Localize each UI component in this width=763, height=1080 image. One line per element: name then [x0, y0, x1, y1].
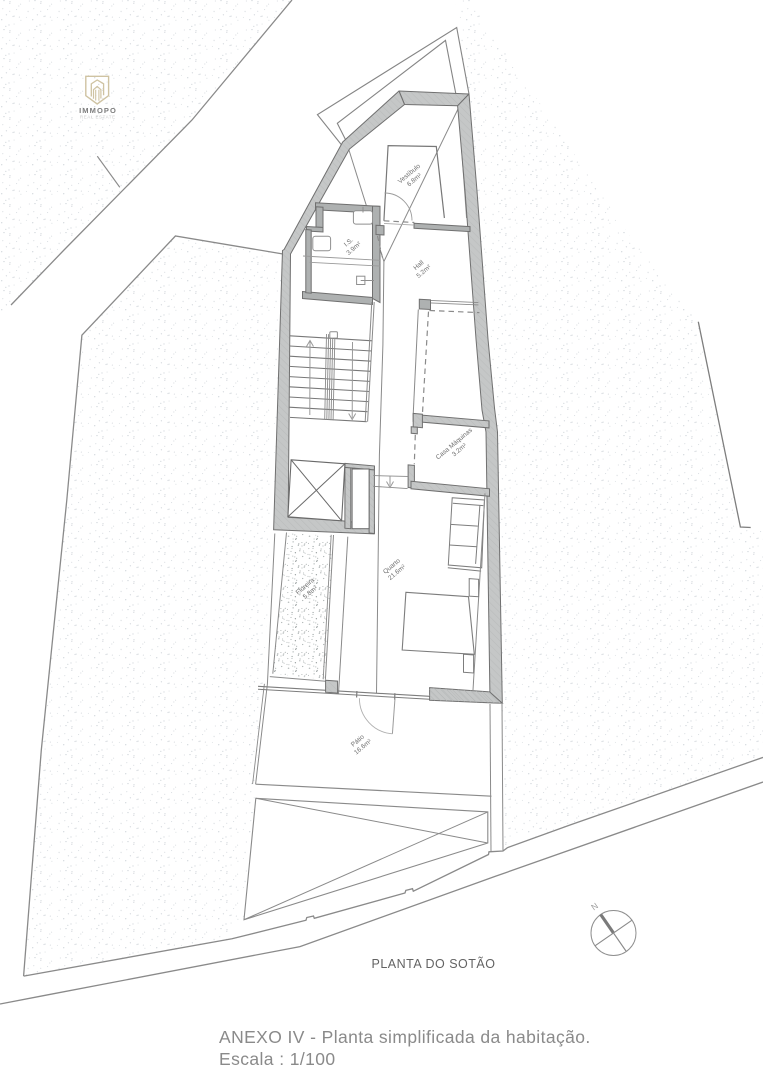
svg-text:Escala : 1/100: Escala : 1/100: [219, 1049, 336, 1069]
svg-text:ANEXO IV - Planta simplificada: ANEXO IV - Planta simplificada da habita…: [219, 1027, 591, 1047]
svg-text:PLANTA DO SOTÃO: PLANTA DO SOTÃO: [372, 957, 496, 971]
svg-text:REAL ESTATE: REAL ESTATE: [80, 115, 116, 120]
